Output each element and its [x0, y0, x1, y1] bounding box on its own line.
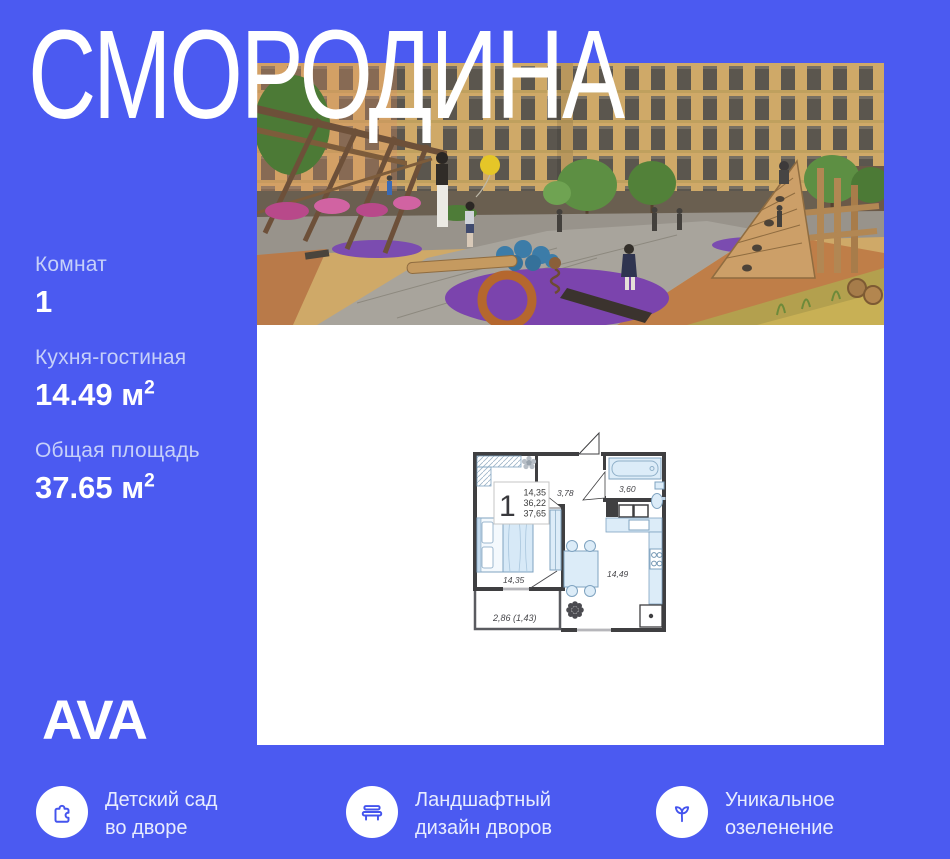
listing-card[interactable]: СМОРОДИНА	[0, 0, 950, 859]
stat-kitchen-living: Кухня-гостиная 14.49 м2	[35, 346, 186, 413]
stat-total-sup: 2	[144, 471, 155, 492]
stat-total-number: 37.65 м	[35, 470, 144, 505]
label-balcony: 2,86 (1,43)	[492, 613, 537, 623]
legend-area-total: 37,65	[523, 509, 546, 519]
feature-line: Детский сад	[105, 786, 217, 814]
feature-line: во дворе	[105, 814, 217, 842]
feature-line: озеленение	[725, 814, 835, 842]
legend-area-living: 14,35	[523, 488, 546, 498]
stat-total-label: Общая площадь	[35, 439, 200, 463]
puzzle-icon	[49, 799, 75, 825]
developer-logo: AVA	[42, 692, 146, 748]
feature-circle	[36, 786, 88, 838]
feature-line: Уникальное	[725, 786, 835, 814]
floorplan: 1 14,35 36,22 37,65 3,78 3,60 14,35 14,4…	[473, 430, 668, 634]
plan-plant	[566, 601, 584, 619]
plan-shafts	[606, 502, 648, 517]
feature-greenery: Уникальное озеленение	[656, 786, 835, 842]
legend-area-no-balcony: 36,22	[523, 498, 546, 508]
legend-rooms: 1	[499, 490, 516, 523]
floorplan-panel: 1 14,35 36,22 37,65 3,78 3,60 14,35 14,4…	[257, 325, 884, 745]
feature-text: Ландшафтный дизайн дворов	[415, 786, 552, 842]
label-hall: 3,78	[557, 488, 574, 498]
stat-rooms: Комнат 1	[35, 253, 107, 320]
stat-kitchen-label: Кухня-гостиная	[35, 346, 186, 370]
bench-icon	[359, 799, 385, 825]
complex-title: СМОРОДИНА	[28, 12, 623, 138]
feature-line: Ландшафтный	[415, 786, 552, 814]
stat-rooms-value: 1	[35, 284, 107, 320]
sprout-icon	[669, 799, 695, 825]
label-bathroom: 3,60	[619, 484, 636, 494]
label-kitchen: 14,49	[607, 569, 629, 579]
stat-total-area: Общая площадь 37.65 м2	[35, 439, 200, 506]
feature-landscape: Ландшафтный дизайн дворов	[346, 786, 552, 842]
feature-text: Уникальное озеленение	[725, 786, 835, 842]
stat-kitchen-number: 14.49 м	[35, 377, 144, 412]
feature-kindergarten: Детский сад во дворе	[36, 786, 217, 842]
plan-flower-decal	[522, 456, 536, 469]
plan-legend: 1 14,35 36,22 37,65	[494, 482, 549, 524]
feature-circle	[656, 786, 708, 838]
stat-rooms-label: Комнат	[35, 253, 107, 277]
stat-total-value: 37.65 м2	[35, 470, 200, 506]
stat-kitchen-sup: 2	[144, 378, 155, 399]
feature-text: Детский сад во дворе	[105, 786, 217, 842]
feature-circle	[346, 786, 398, 838]
stat-kitchen-value: 14.49 м2	[35, 377, 186, 413]
label-bedroom: 14,35	[503, 575, 525, 585]
stat-rooms-number: 1	[35, 284, 52, 319]
feature-line: дизайн дворов	[415, 814, 552, 842]
